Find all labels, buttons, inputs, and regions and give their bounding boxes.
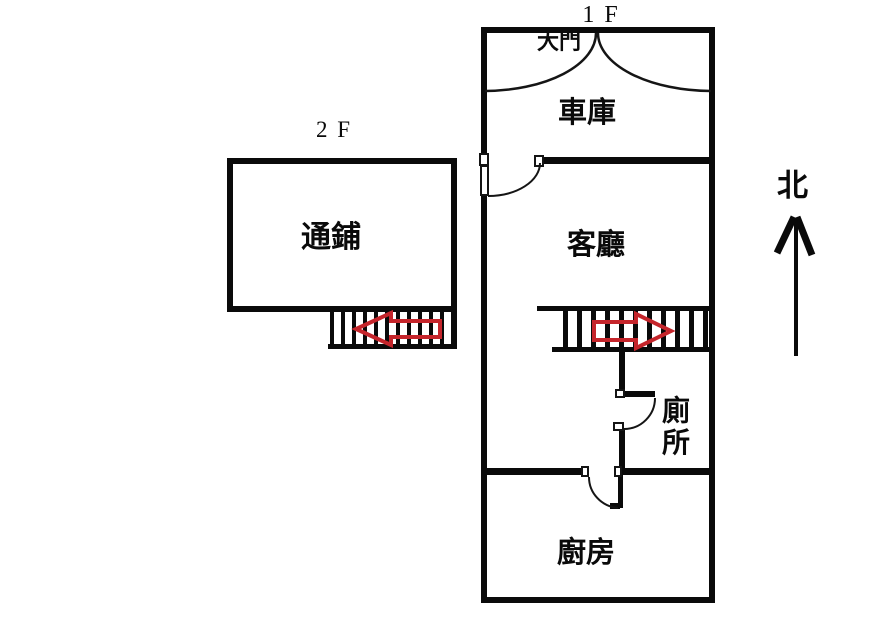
stair-tread	[363, 312, 367, 345]
kitchen-door-leaf-tip	[610, 503, 620, 509]
stair-tread	[619, 308, 624, 349]
wall-garage-living	[540, 157, 715, 164]
door-leaf-left-wall	[480, 165, 489, 196]
kitchen-label: 廚房	[557, 539, 615, 568]
stair-tread	[440, 312, 444, 345]
stair-tread	[396, 312, 400, 345]
stair-tread	[703, 308, 708, 349]
stair-tread	[407, 312, 411, 345]
garage-label: 車庫	[558, 99, 616, 128]
north-arrow-icon	[777, 217, 812, 356]
stairs2f-right-edge	[451, 312, 457, 349]
stairs-1f	[563, 308, 713, 349]
jamb-toilet-bottom	[613, 422, 624, 431]
jamb-garage-door	[534, 155, 544, 167]
stair-tread	[633, 308, 638, 349]
main-door-label: 大門	[537, 31, 581, 53]
floor1-label: 1 F	[581, 3, 621, 27]
stair-tread	[341, 312, 345, 345]
living-room-label: 客廳	[567, 231, 625, 260]
stair-tread	[374, 312, 378, 345]
jamb-toilet-top	[615, 389, 625, 398]
stair-tread	[647, 308, 652, 349]
stair-tread	[605, 308, 610, 349]
sleeping-area-label: 通鋪	[301, 223, 361, 253]
stair-tread	[577, 308, 582, 349]
wall-kitchen-left	[484, 468, 585, 475]
stairs-2f	[330, 312, 450, 345]
stair-tread	[418, 312, 422, 345]
floor-plan-canvas: 1 F 大門 車庫 客廳 廁所 廚房 2 F 通鋪 北	[0, 0, 880, 634]
wall-kitchen-right	[621, 468, 715, 475]
jamb-kitchen-left	[581, 466, 589, 477]
toilet-label: 廁所	[661, 396, 691, 461]
stair-tread	[330, 312, 334, 345]
stair-tread	[591, 308, 596, 349]
stairs2f-bottom-rail	[328, 344, 457, 349]
stair-tread	[689, 308, 694, 349]
stair-tread	[675, 308, 680, 349]
toilet-door-leaf	[624, 391, 655, 397]
stair-tread	[385, 312, 389, 345]
stair-tread	[563, 308, 568, 349]
stair-tread	[429, 312, 433, 345]
stair-tread	[352, 312, 356, 345]
north-label: 北	[777, 170, 808, 201]
jamb-kitchen-right	[614, 466, 622, 477]
floor2-label: 2 F	[312, 118, 356, 141]
stair-tread	[661, 308, 666, 349]
wall-toilet-upper	[619, 350, 625, 393]
